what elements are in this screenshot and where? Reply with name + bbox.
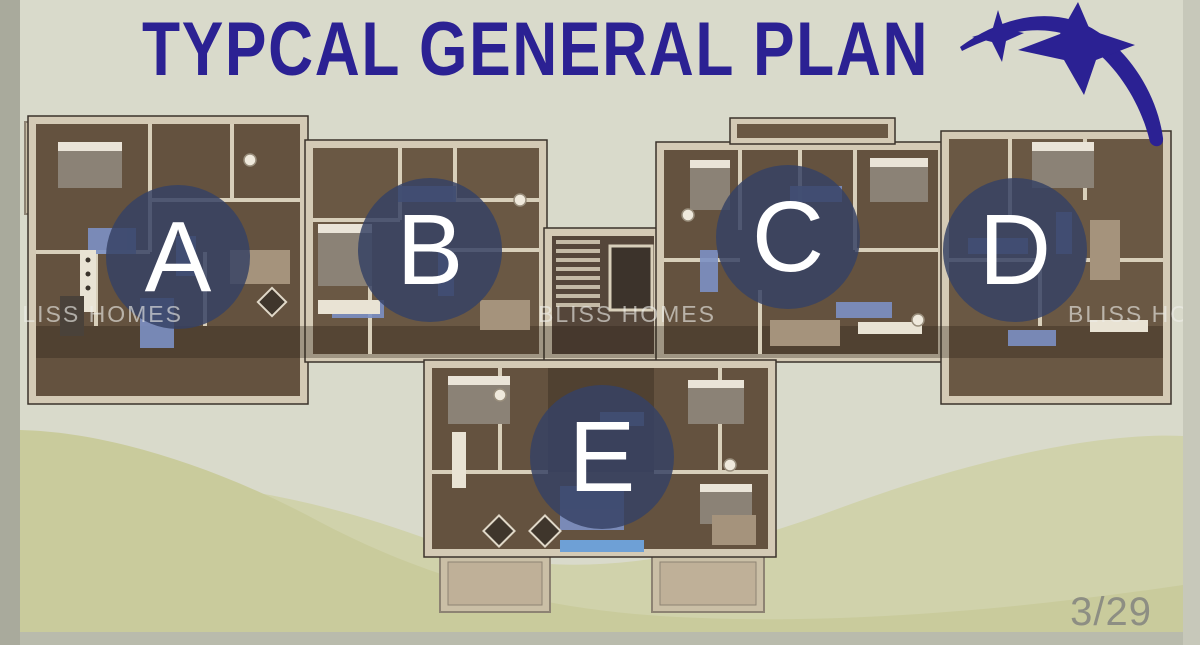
pool-strip bbox=[560, 540, 644, 552]
unit-label-d: D bbox=[979, 200, 1051, 300]
unit-label-a: A bbox=[145, 207, 212, 307]
unit-label-c: C bbox=[752, 187, 824, 287]
unit-label-b: B bbox=[397, 200, 464, 300]
frame-strip-right bbox=[1183, 0, 1200, 645]
unit-label-e: E bbox=[569, 407, 636, 507]
unit-badge-d: D bbox=[943, 178, 1087, 322]
watermark-left: BLISS HOMES bbox=[5, 301, 183, 328]
frame-strip-left bbox=[0, 0, 20, 645]
unit-badge-b: B bbox=[358, 178, 502, 322]
watermark-center: BLISS HOMES bbox=[538, 301, 716, 328]
watermark-right: BLISS HOMES bbox=[1068, 301, 1200, 328]
unit-badge-c: C bbox=[716, 165, 860, 309]
unit-badge-e: E bbox=[530, 385, 674, 529]
frame-strip-bottom bbox=[20, 632, 1183, 645]
slide-canvas: TYPCAL GENERAL PLAN A B C D E BLISS HOME… bbox=[0, 0, 1200, 645]
page-indicator: 3/29 bbox=[1070, 590, 1152, 635]
slide-title: TYPCAL GENERAL PLAN bbox=[142, 6, 929, 93]
